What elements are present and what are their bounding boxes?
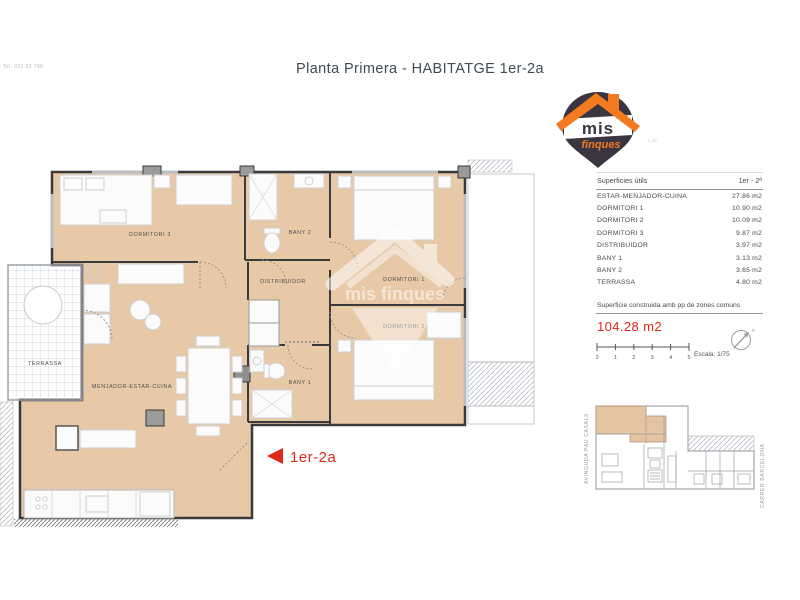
scale-tick: 3 <box>651 355 654 361</box>
built-surface-label: Superficie construida amb pp de zones co… <box>596 300 763 314</box>
unit-arrow-label: 1er-2a <box>290 449 337 466</box>
surfaces-table: Superficies útils 1er - 2ª ESTAR-MENJADO… <box>596 172 763 289</box>
surfaces-header-unit: 1er - 2ª <box>739 176 762 185</box>
row-value: 27.86 m2 <box>732 193 762 200</box>
table-row: DORMITORI 39.87 m2 <box>596 227 763 239</box>
room-label-distribuidor: DISTRIBUIDOR <box>260 279 306 285</box>
row-value: 3.13 m2 <box>736 255 762 262</box>
scale-tick: 2 <box>632 355 635 361</box>
logo-word-1: mis <box>582 119 614 138</box>
table-row: DORMITORI 110.90 m2 <box>596 202 763 214</box>
row-value: 3.65 m2 <box>736 267 762 274</box>
row-name: ESTAR-MENJADOR-CUINA <box>597 193 687 200</box>
row-value: 4.80 m2 <box>736 279 762 286</box>
north-compass-icon: N <box>728 324 760 356</box>
row-value: 10.09 m2 <box>732 217 762 224</box>
table-row: BANY 13.13 m2 <box>596 252 763 264</box>
room-label-bany1: BANY 1 <box>289 380 312 386</box>
header-fine-print: Tel. 933 63 796 <box>3 64 43 70</box>
street-label-left: AVINGUDA PAU CASALS <box>584 413 590 484</box>
scale-tick: 0 <box>596 355 599 361</box>
brand-logo: mis finques <box>552 86 644 170</box>
north-letter: N <box>752 328 755 333</box>
room-label-bany2: BANY 2 <box>289 230 312 236</box>
row-name: DORMITORI 1 <box>597 205 644 212</box>
scale-tick: 4 <box>669 355 672 361</box>
row-name: TERRASSA <box>597 279 635 286</box>
table-row: TERRASSA4.80 m2 <box>596 277 763 289</box>
table-row: BANY 23.65 m2 <box>596 264 763 276</box>
scale-tick: 1 <box>614 355 617 361</box>
row-name: DORMITORI 3 <box>597 230 644 237</box>
scale-label: Escala: 1/75 <box>694 351 730 358</box>
street-label-right: CARRER BARCELONA <box>760 443 766 508</box>
table-row: DORMITORI 210.09 m2 <box>596 215 763 227</box>
left-arrow-icon <box>267 448 283 464</box>
row-name: BANY 2 <box>597 267 622 274</box>
room-label-terrassa: TERRASSA <box>28 361 62 367</box>
page-title: Planta Primera - HABITATGE 1er-2a <box>20 61 800 77</box>
room-label-dormitori2: DORMITORI 2 <box>383 324 425 330</box>
room-label-dormitori3: DORMITORI 3 <box>129 232 171 238</box>
row-value: 10.90 m2 <box>732 205 762 212</box>
row-name: DORMITORI 2 <box>597 217 644 224</box>
unit-arrow-group: 1er-2a <box>267 448 337 466</box>
row-value: 9.87 m2 <box>736 230 762 237</box>
table-row: DISTRIBUIDOR3.97 m2 <box>596 240 763 252</box>
row-name: BANY 1 <box>597 255 622 262</box>
scale-bar: 0 1 2 3 4 5 <box>596 342 706 364</box>
key-plan <box>588 396 758 501</box>
surfaces-table-header: Superficies útils 1er - 2ª <box>596 172 763 190</box>
logo-word-2: finques <box>581 139 620 151</box>
terrace-area <box>8 265 82 400</box>
room-label-menjador: MENJADOR-ESTAR-CUINA <box>92 384 172 390</box>
floor-plan: DORMITORI 3 BANY 2 DISTRIBUIDOR DORMITOR… <box>0 150 540 530</box>
scale-tick: 5 <box>687 355 690 361</box>
table-row: ESTAR-MENJADOR-CUINA27.86 m2 <box>596 190 763 202</box>
row-value: 3.97 m2 <box>736 242 762 249</box>
row-name: DISTRIBUIDOR <box>597 242 648 249</box>
logo-fine-print: L.Mi. <box>648 138 658 143</box>
surfaces-header-label: Superficies útils <box>597 176 647 185</box>
room-label-dormitori1: DORMITORI 1 <box>383 277 425 283</box>
